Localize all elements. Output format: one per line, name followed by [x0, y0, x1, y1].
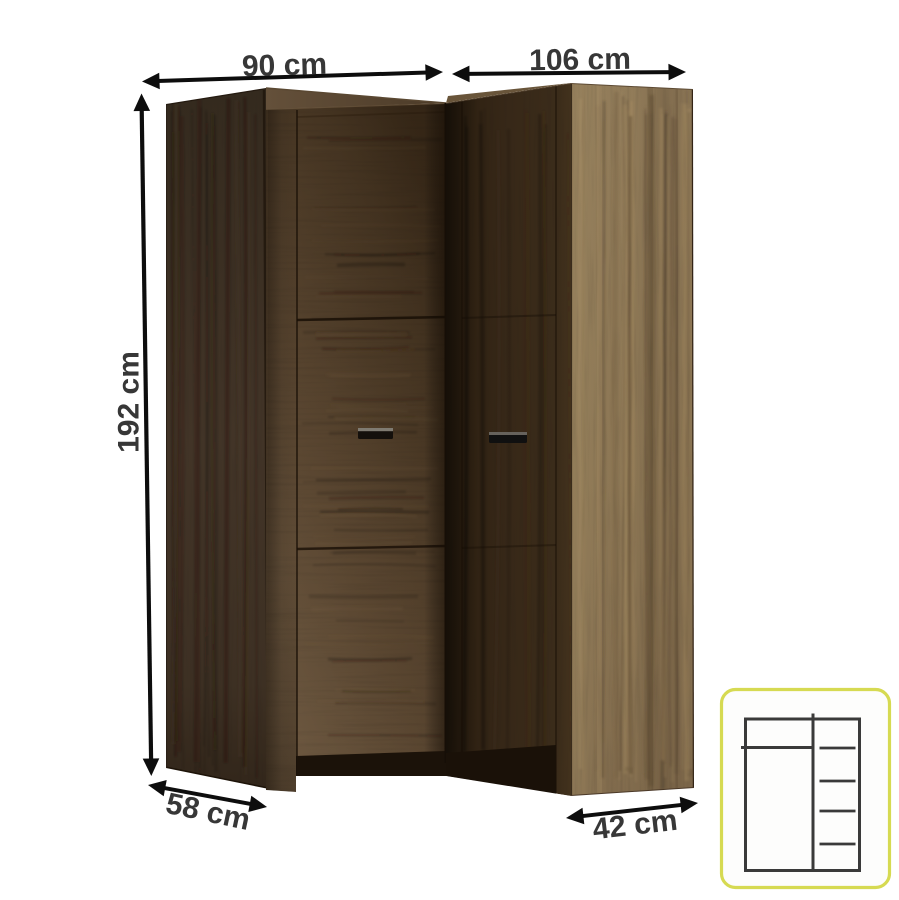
svg-text:106 cm: 106 cm: [529, 43, 631, 77]
svg-text:192 cm: 192 cm: [113, 351, 146, 453]
svg-text:90 cm: 90 cm: [241, 48, 327, 84]
